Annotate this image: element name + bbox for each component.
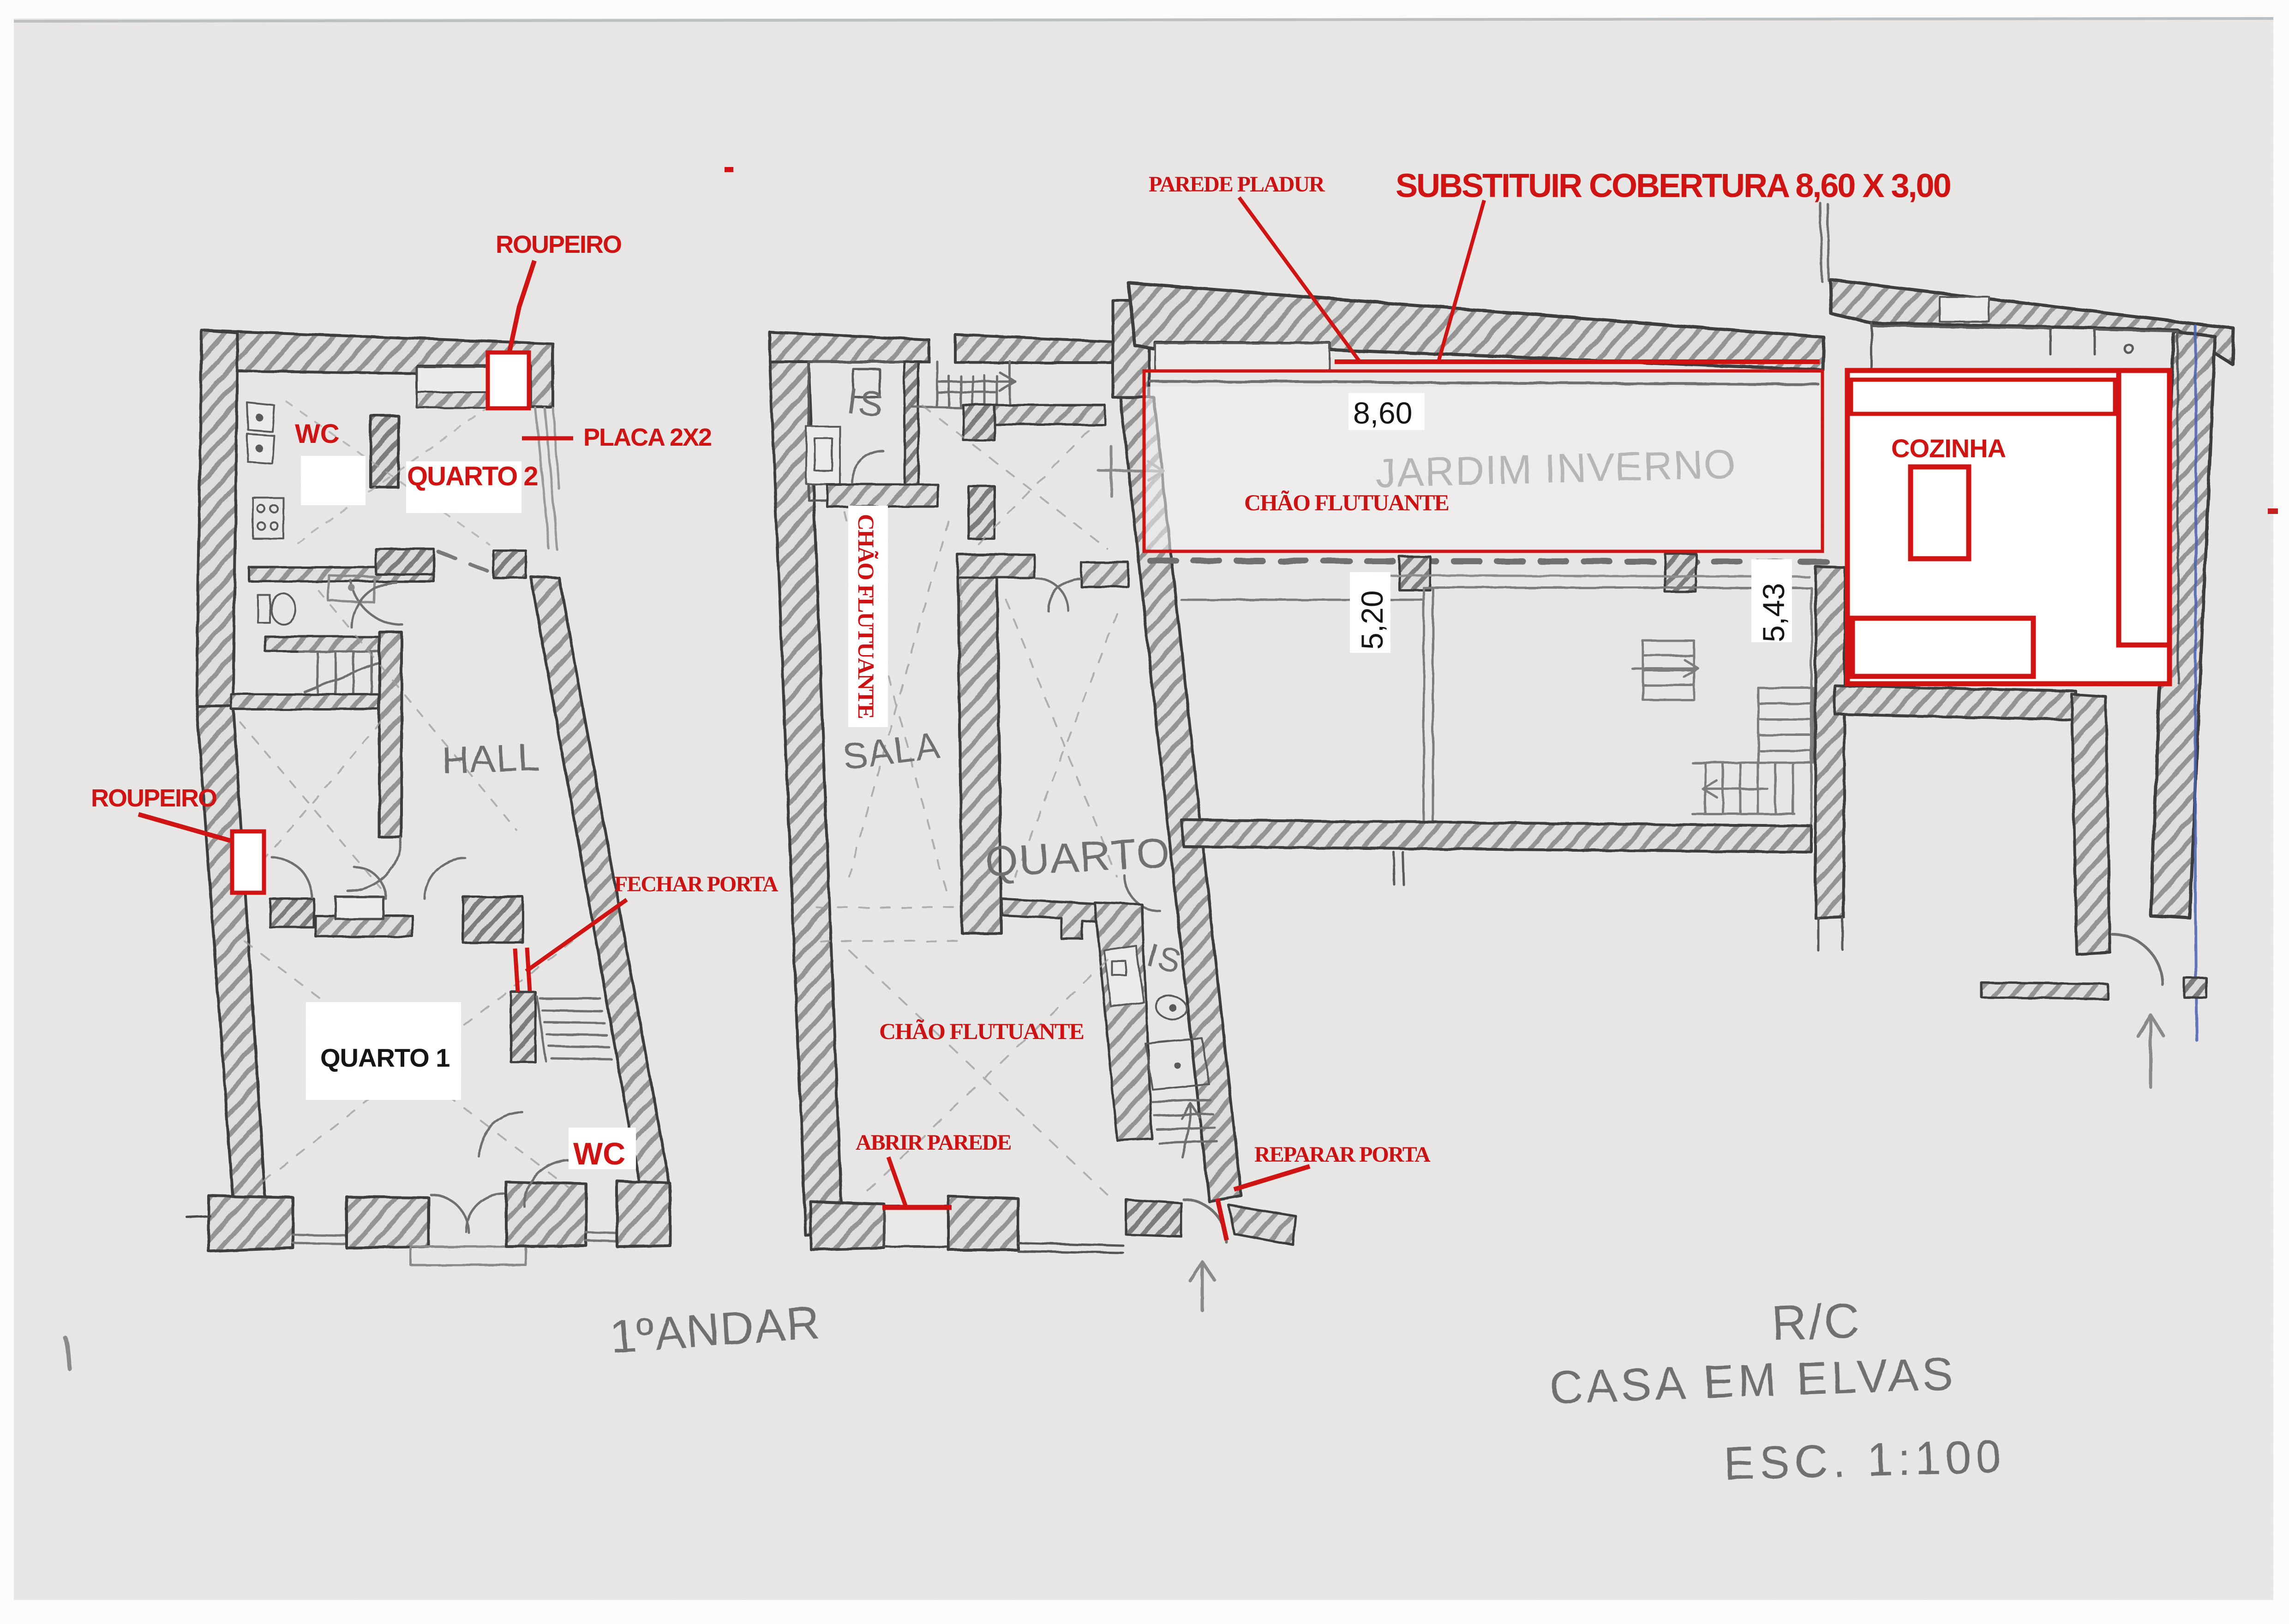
svg-text:ABRIR PAREDE: ABRIR PAREDE [856,1130,1011,1155]
svg-text:CHÃO FLUTUANTE: CHÃO FLUTUANTE [1244,490,1449,515]
svg-text:QUARTO 2: QUARTO 2 [407,461,538,491]
svg-text:WC: WC [573,1136,625,1171]
svg-text:5,43: 5,43 [1756,583,1791,642]
svg-text:FECHAR PORTA: FECHAR PORTA [614,872,779,896]
svg-text:CHÃO FLUTUANTE: CHÃO FLUTUANTE [853,514,879,718]
svg-text:5,20: 5,20 [1355,591,1389,650]
svg-text:R/C: R/C [1771,1293,1863,1351]
svg-text:ROUPEIRO: ROUPEIRO [91,784,216,812]
svg-text:QUARTO 1: QUARTO 1 [320,1043,449,1072]
svg-text:QUARTO: QUARTO [984,829,1172,886]
svg-text:PAREDE PLADUR: PAREDE PLADUR [1149,172,1325,197]
svg-text:8,60: 8,60 [1353,396,1412,430]
svg-text:HALL: HALL [441,736,540,782]
svg-text:REPARAR PORTA: REPARAR PORTA [1254,1142,1431,1167]
svg-text:PLACA 2X2: PLACA 2X2 [583,424,711,451]
svg-text:CHÃO FLUTUANTE: CHÃO FLUTUANTE [879,1018,1084,1044]
svg-text:IS: IS [845,380,887,426]
svg-text:WC: WC [295,419,340,449]
svg-text:COZINHA: COZINHA [1891,434,2006,463]
svg-text:ROUPEIRO: ROUPEIRO [496,231,621,258]
svg-text:SUBSTITUIR COBERTURA 8,60 X 3,: SUBSTITUIR COBERTURA 8,60 X 3,00 [1396,167,1951,204]
svg-text:ESC. 1:100: ESC. 1:100 [1723,1431,2007,1490]
